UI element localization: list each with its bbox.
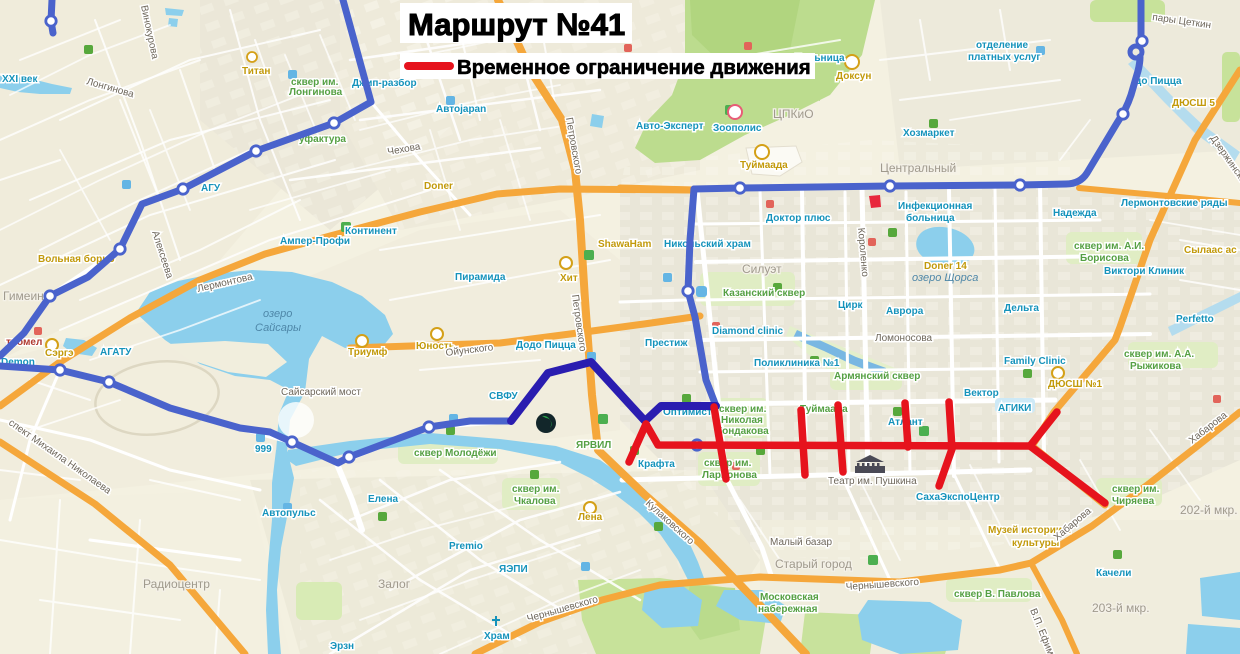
svg-text:Doner: Doner <box>424 181 453 192</box>
svg-text:Автопульс: Автопульс <box>262 508 316 519</box>
svg-text:платных услуг: платных услуг <box>968 52 1041 63</box>
svg-text:ЯРВИЛ: ЯРВИЛ <box>576 440 611 451</box>
svg-text:Family Clinic: Family Clinic <box>1004 356 1066 367</box>
svg-text:Радиоцентр: Радиоцентр <box>143 577 210 591</box>
svg-text:до Пицца: до Пицца <box>1135 76 1182 87</box>
svg-text:сквер им. А.И.: сквер им. А.И. <box>1074 241 1144 252</box>
svg-text:Елена: Елена <box>368 494 398 505</box>
svg-text:Театр им. Пушкина: Театр им. Пушкина <box>828 476 917 487</box>
svg-text:АГУ: АГУ <box>201 183 221 194</box>
svg-text:озеро: озеро <box>263 308 292 320</box>
svg-text:озеро Щорса: озеро Щорса <box>912 272 978 284</box>
svg-text:Николая: Николая <box>721 415 763 426</box>
svg-text:Эрзн: Эрзн <box>330 641 354 652</box>
svg-text:Залог: Залог <box>378 577 411 591</box>
svg-text:Надежда: Надежда <box>1053 208 1097 219</box>
svg-text:Зоополис: Зоополис <box>713 123 762 134</box>
svg-text:Хозмаркет: Хозмаркет <box>903 128 955 139</box>
svg-text:Казанский сквер: Казанский сквер <box>723 288 805 299</box>
svg-text:202-й мкр.: 202-й мкр. <box>1180 503 1238 517</box>
svg-text:Perfetto: Perfetto <box>1176 314 1214 325</box>
svg-text:сквер В. Павлова: сквер В. Павлова <box>954 589 1041 600</box>
svg-text:Ампер-Профи: Ампер-Профи <box>280 235 350 247</box>
svg-text:АГАТУ: АГАТУ <box>100 347 132 358</box>
svg-text:ДЮСШ №1: ДЮСШ №1 <box>1048 379 1103 390</box>
svg-text:Старый город: Старый город <box>775 557 852 571</box>
svg-text:Сайсары: Сайсары <box>255 322 301 334</box>
svg-text:Дельта: Дельта <box>1004 303 1039 314</box>
svg-text:Континент: Континент <box>345 226 397 237</box>
svg-text:Центральный: Центральный <box>880 161 956 175</box>
svg-text:Туймаада: Туймаада <box>740 160 788 171</box>
svg-text:Московская: Московская <box>760 592 819 603</box>
svg-text:Doner 14: Doner 14 <box>924 261 967 272</box>
svg-text:больница: больница <box>906 212 955 224</box>
svg-text:Лермонтовские ряды: Лермонтовские ряды <box>1121 198 1228 209</box>
svg-text:культуры: культуры <box>1012 538 1059 549</box>
svg-text:сквер им. А.А.: сквер им. А.А. <box>1124 349 1194 360</box>
svg-text:Кондакова: Кондакова <box>716 426 769 437</box>
svg-text:Додо Пицца: Додо Пицца <box>516 340 576 351</box>
svg-text:Авто-Эксперт: Авто-Эксперт <box>636 121 704 132</box>
svg-text:Сэргэ: Сэргэ <box>45 348 74 359</box>
svg-text:203-й мкр.: 203-й мкр. <box>1092 601 1150 615</box>
svg-text:Качели: Качели <box>1096 568 1131 579</box>
svg-text:Пирамида: Пирамида <box>455 272 506 283</box>
svg-text:Вектор: Вектор <box>964 388 999 399</box>
svg-text:ShawaHam: ShawaHam <box>598 239 651 250</box>
svg-text:Цирк: Цирк <box>838 300 864 311</box>
svg-text:Аврора: Аврора <box>886 306 924 317</box>
svg-text:АГИКИ: АГИКИ <box>998 403 1031 414</box>
svg-text:Сайсарский мост: Сайсарский мост <box>281 387 361 398</box>
svg-text:Хит: Хит <box>560 273 578 284</box>
svg-text:999: 999 <box>255 444 272 455</box>
svg-text:отделение: отделение <box>976 40 1029 51</box>
svg-text:Временное ограничение движения: Временное ограничение движения <box>457 57 811 79</box>
svg-text:сквер Молодёжи: сквер Молодёжи <box>414 448 497 459</box>
svg-text:Чиряева: Чиряева <box>1112 496 1155 507</box>
svg-text:Борисова: Борисова <box>1080 253 1129 264</box>
svg-text:Premio: Premio <box>449 541 483 552</box>
svg-text:Престиж: Престиж <box>645 338 688 349</box>
svg-text:СахаЭкспоЦентр: СахаЭкспоЦентр <box>916 492 1000 503</box>
svg-text:Инфекционная: Инфекционная <box>898 200 972 212</box>
svg-text:Армянский сквер: Армянский сквер <box>834 371 920 382</box>
svg-text:Храм: Храм <box>484 631 510 642</box>
svg-text:Diamond clinic: Diamond clinic <box>712 326 784 337</box>
svg-text:Рыжикова: Рыжикова <box>1130 361 1181 372</box>
svg-text:Ломоносова: Ломоносова <box>875 333 933 344</box>
svg-text:ЦПКиО: ЦПКиО <box>773 107 814 121</box>
svg-text:сквер им.: сквер им. <box>512 484 560 495</box>
svg-text:XXI век: XXI век <box>2 74 38 85</box>
svg-text:Доксун: Доксун <box>836 71 871 82</box>
svg-text:Триумф: Триумф <box>348 346 388 358</box>
svg-text:Чкалова: Чкалова <box>514 496 556 507</box>
svg-text:Поликлиника №1: Поликлиника №1 <box>754 358 840 369</box>
svg-text:Титан: Титан <box>242 66 270 77</box>
svg-text:Гимеин: Гимеин <box>3 289 44 303</box>
svg-text:Маршрут №41: Маршрут №41 <box>408 7 625 42</box>
svg-text:Силуэт: Силуэт <box>742 262 782 276</box>
svg-text:СВФУ: СВФУ <box>489 391 518 402</box>
svg-text:ДЮСШ 5: ДЮСШ 5 <box>1172 98 1215 109</box>
svg-text:Лонгинова: Лонгинова <box>289 87 343 98</box>
svg-text:Виктори Клиник: Виктори Клиник <box>1104 266 1185 277</box>
svg-text:Лена: Лена <box>578 512 603 523</box>
svg-text:Доктор плюс: Доктор плюс <box>766 213 831 224</box>
svg-text:Сылаас ас: Сылаас ас <box>1184 245 1237 256</box>
svg-text:Малый базар: Малый базар <box>770 536 832 548</box>
svg-text:Никольский храм: Никольский храм <box>664 239 751 250</box>
svg-text:набережная: набережная <box>758 603 818 615</box>
svg-text:сквер им.: сквер им. <box>1112 484 1160 495</box>
svg-text:Автоjapan: Автоjapan <box>436 104 486 115</box>
svg-text:ЯЭПИ: ЯЭПИ <box>499 564 528 575</box>
svg-text:сквер им.: сквер им. <box>719 404 767 415</box>
svg-text:Крафта: Крафта <box>638 458 675 470</box>
